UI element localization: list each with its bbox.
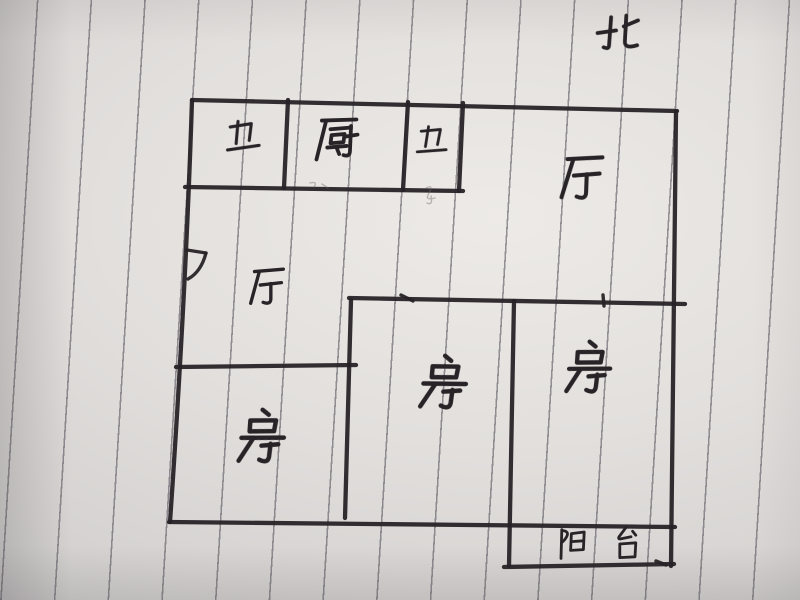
room-label-balcony (553, 524, 647, 564)
wall-outer-top (192, 100, 677, 111)
floorplan-drawing (0, 0, 800, 600)
wall-kitchen-bath2 (403, 102, 408, 190)
pen-tick-2 (603, 295, 604, 306)
wall-mid-vertical (345, 300, 351, 518)
room-label-inner-hall (243, 262, 291, 310)
door-swing-arc-icon (187, 250, 206, 279)
wall-outer-left (170, 100, 192, 522)
room-label-living-hall (552, 147, 612, 207)
wall-mid-horizontal (349, 298, 685, 304)
wall-outer-right (671, 112, 676, 566)
wall-innerhall-bedroom (176, 365, 356, 367)
room-label-bedroom-west (228, 404, 296, 472)
floorplan-photo (0, 0, 800, 600)
wall-bath2-right (459, 103, 463, 191)
wall-toprow-bottom (185, 187, 463, 191)
room-label-bathroom-2 (411, 121, 452, 162)
wall-bath1-kitchen (284, 100, 288, 188)
room-label-bathroom-1 (220, 115, 266, 161)
wall-balcony-bottom (504, 564, 674, 567)
room-label-bedroom-middle (409, 349, 478, 418)
north-marker (590, 9, 646, 65)
room-label-bedroom-east (556, 336, 622, 402)
room-label-kitchen (310, 113, 364, 167)
